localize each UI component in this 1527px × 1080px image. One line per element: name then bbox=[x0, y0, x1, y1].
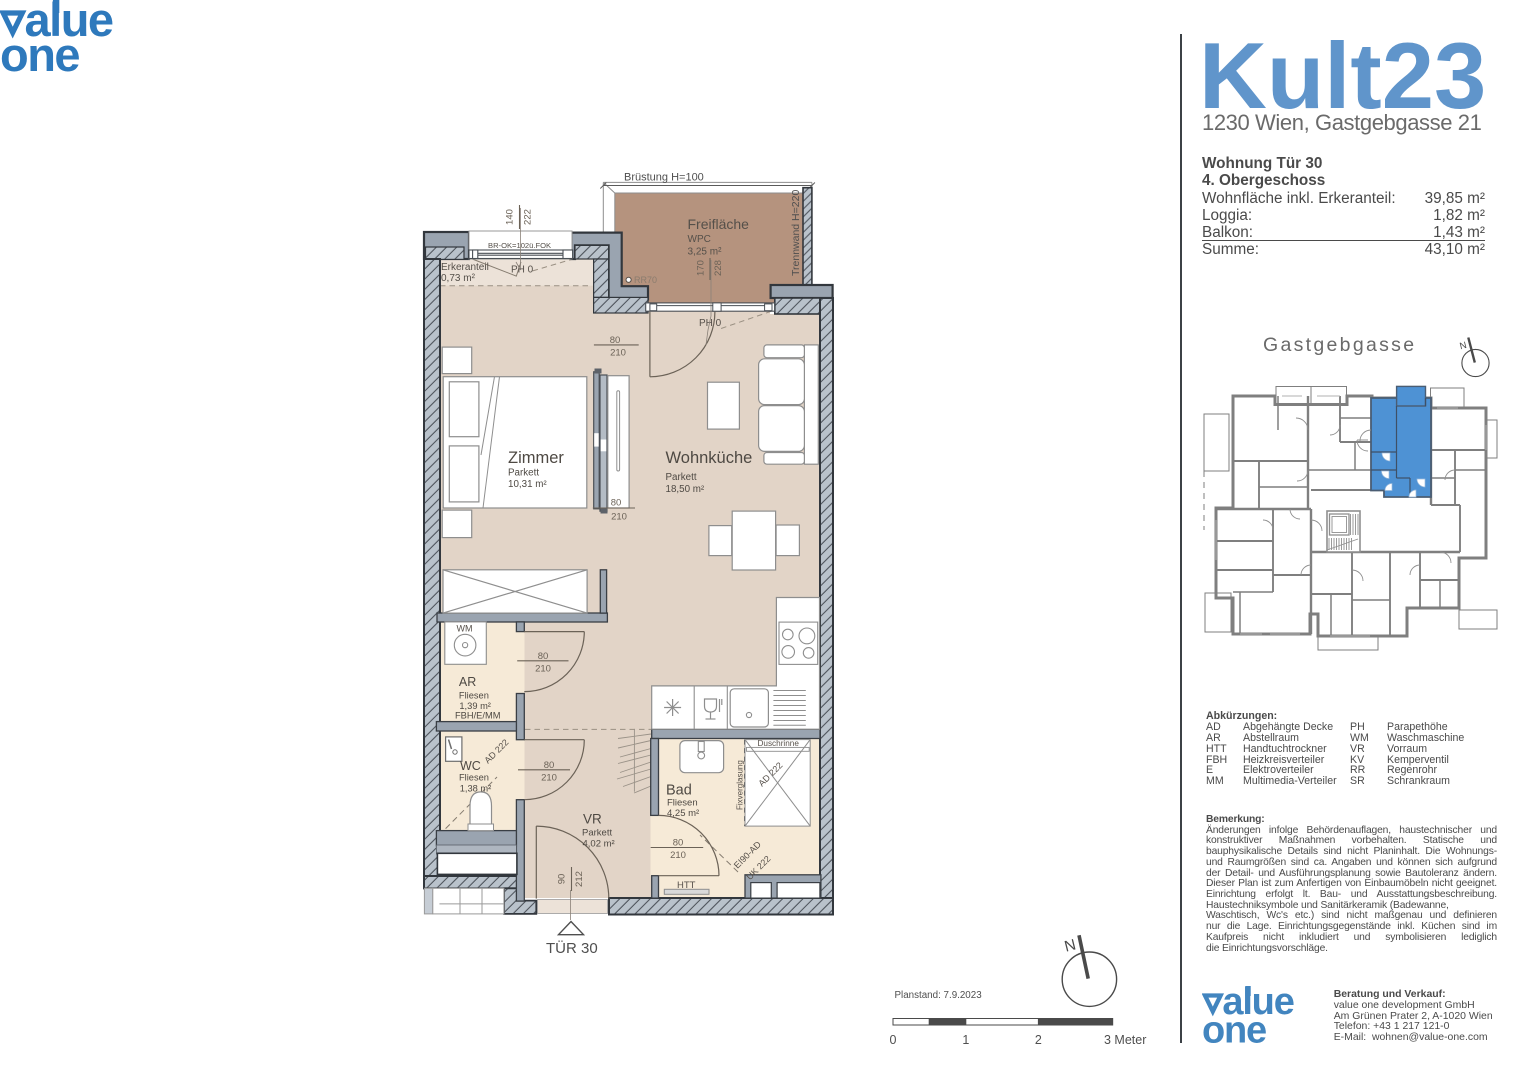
svg-text:one: one bbox=[0, 28, 79, 81]
svg-text:210: 210 bbox=[535, 664, 551, 675]
svg-text:3,25 m²: 3,25 m² bbox=[688, 247, 723, 258]
svg-text:18,50 m²: 18,50 m² bbox=[666, 484, 705, 495]
svg-text:210: 210 bbox=[670, 850, 686, 861]
svg-text:N: N bbox=[1459, 340, 1468, 352]
svg-text:Planstand: 7.9.2023: Planstand: 7.9.2023 bbox=[895, 990, 983, 1001]
svg-text:Parkett: Parkett bbox=[582, 828, 612, 839]
svg-text:210: 210 bbox=[541, 773, 557, 784]
svg-text:1,38 m²: 1,38 m² bbox=[460, 784, 492, 794]
svg-text:212: 212 bbox=[574, 871, 585, 887]
svg-text:4,25 m²: 4,25 m² bbox=[667, 808, 699, 819]
svg-text:80: 80 bbox=[673, 838, 684, 849]
svg-text:WM: WM bbox=[457, 624, 473, 634]
svg-text:Gastgebgasse: Gastgebgasse bbox=[1263, 334, 1416, 356]
svg-text:10,31 m²: 10,31 m² bbox=[508, 479, 547, 490]
svg-text:PH 0: PH 0 bbox=[511, 265, 534, 276]
svg-text:170: 170 bbox=[696, 260, 707, 276]
svg-text:Erkeranteil: Erkeranteil bbox=[441, 262, 489, 273]
svg-text:RR70: RR70 bbox=[634, 275, 657, 285]
svg-text:3 Meter: 3 Meter bbox=[1104, 1033, 1146, 1047]
svg-text:Freifläche: Freifläche bbox=[688, 216, 750, 232]
svg-text:one: one bbox=[1202, 1010, 1266, 1047]
svg-text:N: N bbox=[1063, 936, 1078, 955]
svg-text:80: 80 bbox=[611, 498, 622, 509]
svg-text:WC: WC bbox=[460, 759, 481, 773]
svg-text:Fliesen: Fliesen bbox=[667, 798, 698, 809]
svg-text:Fliesen: Fliesen bbox=[459, 691, 489, 701]
svg-text:Fixverglasung: Fixverglasung bbox=[736, 760, 745, 810]
svg-text:FBH/E/MM: FBH/E/MM bbox=[455, 710, 500, 720]
svg-text:BR-OK=102ü.FOK: BR-OK=102ü.FOK bbox=[488, 241, 551, 250]
svg-text:222: 222 bbox=[523, 209, 534, 225]
svg-text:210: 210 bbox=[610, 348, 626, 359]
svg-text:1: 1 bbox=[962, 1033, 969, 1047]
svg-text:210: 210 bbox=[611, 511, 627, 522]
svg-text:80: 80 bbox=[610, 335, 621, 346]
svg-text:Parkett: Parkett bbox=[508, 467, 539, 478]
svg-text:0: 0 bbox=[890, 1033, 897, 1047]
svg-text:VR: VR bbox=[583, 812, 602, 827]
svg-text:Fliesen: Fliesen bbox=[459, 773, 489, 783]
svg-text:80: 80 bbox=[538, 651, 549, 662]
svg-text:Zimmer: Zimmer bbox=[508, 449, 564, 467]
svg-text:4,02 m²: 4,02 m² bbox=[583, 839, 615, 850]
svg-text:WPC: WPC bbox=[688, 234, 711, 245]
svg-text:0,73 m²: 0,73 m² bbox=[441, 273, 476, 284]
svg-text:Wohnküche: Wohnküche bbox=[666, 449, 753, 467]
svg-text:90: 90 bbox=[557, 874, 568, 885]
svg-text:2: 2 bbox=[1035, 1033, 1042, 1047]
svg-text:AR: AR bbox=[459, 675, 476, 689]
svg-text:TÜR 30: TÜR 30 bbox=[546, 939, 598, 957]
svg-text:HTT: HTT bbox=[677, 880, 696, 891]
svg-text:Parkett: Parkett bbox=[666, 472, 697, 483]
svg-text:140: 140 bbox=[505, 209, 516, 225]
svg-text:80: 80 bbox=[544, 760, 555, 771]
svg-text:Trennwand H=220: Trennwand H=220 bbox=[790, 190, 802, 276]
svg-text:228: 228 bbox=[713, 260, 724, 276]
svg-text:Brüstung H=100: Brüstung H=100 bbox=[624, 172, 704, 184]
svg-text:Bad: Bad bbox=[666, 783, 692, 799]
svg-text:Duschrinne: Duschrinne bbox=[758, 739, 800, 748]
